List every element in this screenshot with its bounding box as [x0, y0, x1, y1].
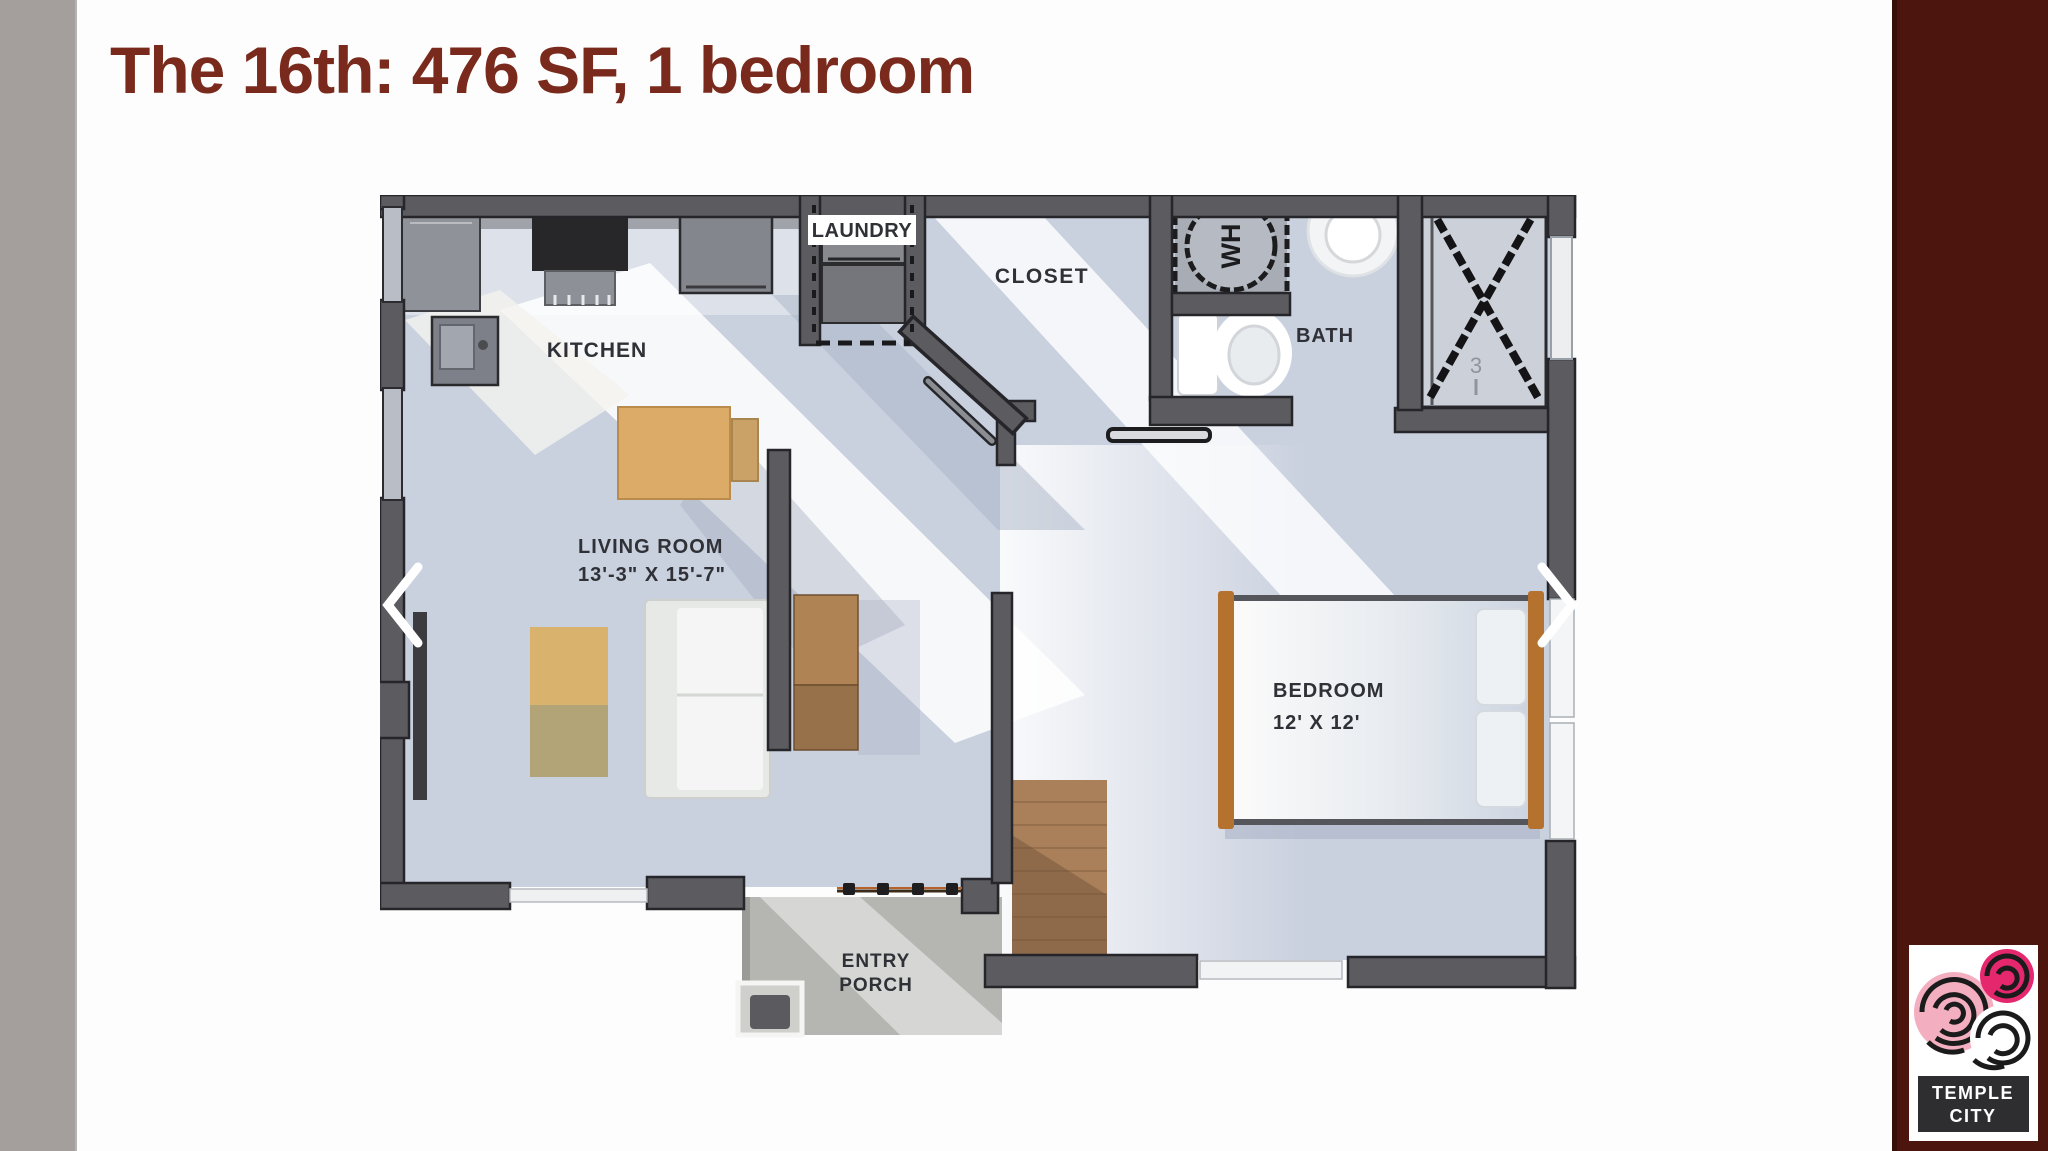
bed: [1218, 591, 1544, 829]
sofa: [645, 600, 770, 798]
wh-label: WH: [1216, 224, 1246, 269]
bath-door-leaf: [1108, 429, 1210, 441]
room-dims-bedroom: 12' X 12': [1273, 712, 1360, 734]
bed-footboard: [1528, 591, 1544, 829]
floorplan-svg: WH 3: [380, 195, 1590, 1040]
room-label-laundry: LAUNDRY: [812, 220, 913, 242]
room-label-porch: PORCH: [839, 975, 913, 996]
coffee-table: [530, 627, 608, 777]
temple-city-logo: TEMPLE CITY: [1910, 946, 2037, 1140]
dining-chair: [732, 419, 758, 481]
shower-x-box: 3: [1422, 199, 1546, 407]
room-dims-living-room: 13'-3" X 15'-7": [578, 564, 726, 586]
left-margin-bar: [0, 0, 77, 1151]
room-label-living-room: LIVING ROOM: [578, 536, 723, 558]
room-label-closet: CLOSET: [995, 265, 1089, 288]
pillow: [1476, 609, 1526, 705]
entry-wood-floor: [1012, 780, 1107, 960]
page-title: The 16th: 476 SF, 1 bedroom: [110, 34, 974, 107]
logo-text: TEMPLE CITY: [1918, 1076, 2029, 1132]
pillow: [1476, 711, 1526, 807]
logo-line2: CITY: [1949, 1106, 1996, 1126]
closet-mark: 3: [1470, 353, 1482, 378]
kitchen-sink: [432, 317, 498, 385]
toilet: [1178, 309, 1292, 397]
logo-line1: TEMPLE: [1932, 1083, 2014, 1103]
room-label-entry: ENTRY: [842, 951, 911, 972]
dresser: [794, 595, 858, 750]
doormat: [750, 995, 790, 1029]
right-margin-bar: TEMPLE CITY: [1892, 0, 2048, 1151]
slide: The 16th: 476 SF, 1 bedroom: [0, 0, 2048, 1151]
room-label-kitchen: KITCHEN: [547, 339, 647, 362]
room-label-bath: BATH: [1296, 325, 1354, 347]
room-label-bedroom: BEDROOM: [1273, 680, 1384, 702]
floorplan-figure: WH 3: [380, 195, 1590, 1040]
bed-headboard: [1218, 591, 1234, 829]
